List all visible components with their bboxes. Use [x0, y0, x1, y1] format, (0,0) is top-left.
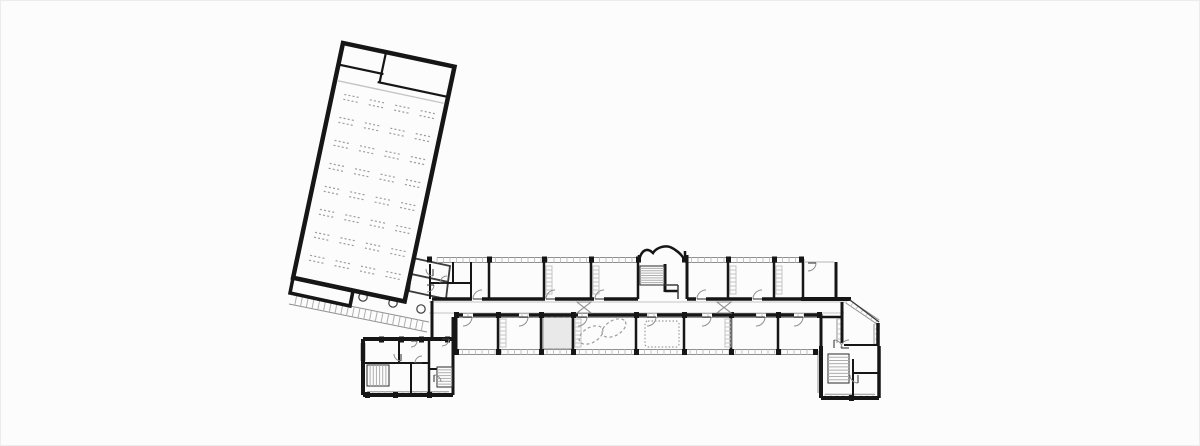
pilaster — [539, 349, 544, 355]
pilaster — [542, 257, 547, 263]
pilaster — [849, 395, 854, 401]
pilaster — [496, 312, 501, 318]
pilaster — [817, 312, 822, 318]
pilaster — [539, 312, 544, 318]
floor-plan-canvas: architectural floor plan drawing — [0, 0, 1200, 446]
pilaster — [634, 349, 639, 355]
pilaster — [379, 337, 384, 343]
pilaster — [365, 392, 370, 398]
pilaster — [399, 337, 404, 343]
shaded-room — [543, 317, 572, 349]
pilaster — [813, 349, 818, 355]
pilaster — [634, 312, 639, 318]
pilaster — [682, 257, 687, 263]
pilaster — [571, 349, 576, 355]
pilaster — [427, 257, 432, 263]
pilaster — [636, 257, 641, 263]
stair-east-block — [828, 354, 849, 383]
pilaster — [496, 349, 501, 355]
pilaster — [589, 257, 594, 263]
pilaster — [454, 312, 459, 318]
pilaster — [776, 312, 781, 318]
pilaster — [776, 349, 781, 355]
pilaster — [427, 392, 432, 398]
column — [417, 305, 425, 313]
pilaster — [487, 257, 492, 263]
pilaster — [571, 312, 576, 318]
pilaster — [772, 257, 777, 263]
floor-plan-svg — [1, 1, 1200, 446]
stair-west-block-a — [367, 365, 389, 386]
pilaster — [726, 257, 731, 263]
pilaster — [393, 392, 398, 398]
pilaster — [454, 349, 459, 355]
pilaster — [682, 312, 687, 318]
pilaster — [682, 349, 687, 355]
pilaster — [729, 349, 734, 355]
stair-main-entrance — [640, 266, 664, 285]
paper-background — [1, 1, 1200, 446]
stair-outline — [828, 354, 849, 383]
pilaster — [419, 337, 424, 343]
pilaster — [799, 257, 804, 263]
